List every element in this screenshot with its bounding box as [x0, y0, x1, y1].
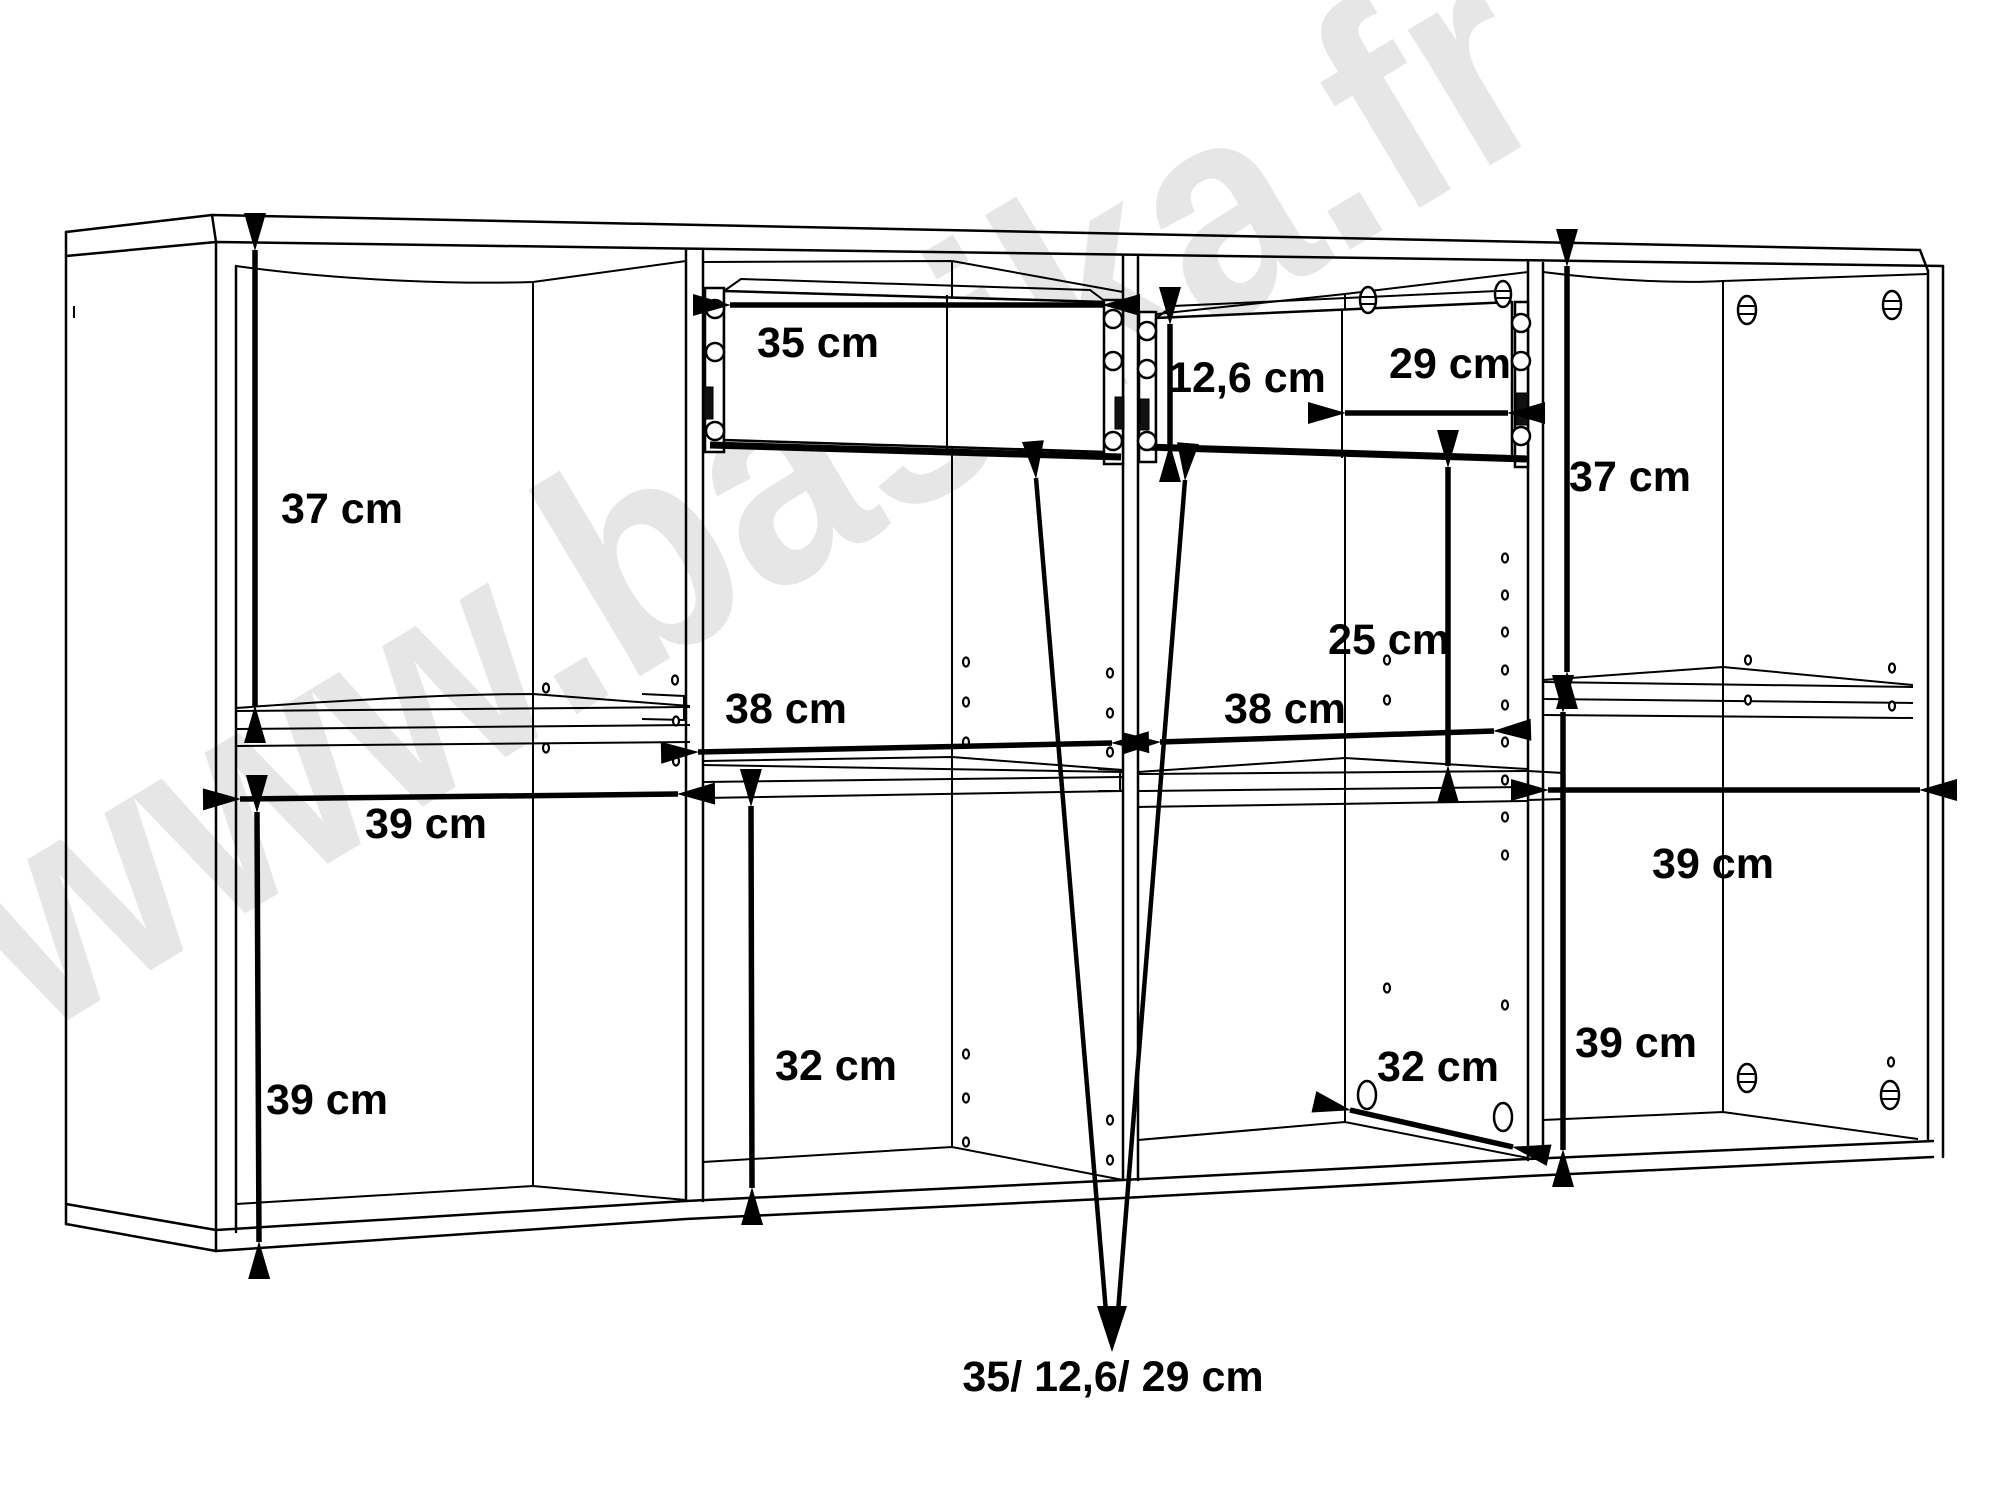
- arrow-left-bottom-height: [257, 812, 259, 1242]
- drawer-callout: 35/ 12,6/ 29 cm: [962, 478, 1263, 1401]
- dim-label-left-width: 39 cm: [365, 800, 487, 848]
- keyhole-icon: [1495, 281, 1511, 307]
- drawer1-latch-right: [1115, 397, 1124, 429]
- keyhole-icon: [1738, 296, 1756, 324]
- keyhole-icon: [1358, 1081, 1376, 1109]
- dim-label-right-top-height: 37 cm: [1569, 453, 1691, 501]
- dim-label-mid-left-width: 38 cm: [725, 685, 847, 733]
- dim-label-left-bottom-height: 39 cm: [266, 1076, 388, 1124]
- bottom-panel: [66, 1112, 1933, 1251]
- drawer2-latch: [1140, 399, 1149, 430]
- dim-label-drawer1-width: 35 cm: [757, 319, 879, 367]
- divider-3: [1528, 261, 1543, 1160]
- furniture-dimension-diagram: www.basika.fr: [0, 0, 2000, 1500]
- arrow-mid-left-width: [698, 743, 1112, 752]
- keyhole-icon: [1738, 1064, 1756, 1092]
- dim-label-drawer2-front-height: 12,6 cm: [1168, 354, 1326, 402]
- callout-label: 35/ 12,6/ 29 cm: [962, 1353, 1263, 1401]
- watermark-text: www.basika.fr: [0, 0, 1596, 1095]
- dim-label-mid-left-bottom-height: 32 cm: [775, 1042, 897, 1090]
- keyhole-icon: [1494, 1103, 1512, 1131]
- dim-label-right-bottom-height: 39 cm: [1575, 1019, 1697, 1067]
- dim-label-right-width: 39 cm: [1652, 840, 1774, 888]
- shelf-right: [1543, 667, 1913, 718]
- callout-arrowhead: [1097, 1306, 1127, 1352]
- keyhole-icon: [1883, 291, 1901, 319]
- dim-label-drawer2-width: 29 cm: [1389, 340, 1511, 388]
- watermark: www.basika.fr: [0, 0, 1596, 1095]
- drawer1-front: [724, 291, 1106, 452]
- keyhole-icon: [1881, 1081, 1899, 1109]
- drawer2-latch-right: [1516, 393, 1528, 425]
- arrow-mid-left-bottom-height: [751, 806, 752, 1188]
- dim-label-mid-right-width: 38 cm: [1224, 685, 1346, 733]
- shelf-mid-right: [1138, 758, 1563, 807]
- drawer1-latch: [704, 387, 713, 419]
- dim-label-mid-right-depth: 32 cm: [1377, 1043, 1499, 1091]
- dim-label-left-top-height: 37 cm: [281, 485, 403, 533]
- dim-label-mid-right-upper-height: 25 cm: [1328, 616, 1450, 664]
- right-panel: [1928, 266, 1943, 1157]
- keyhole-icon: [1360, 287, 1376, 313]
